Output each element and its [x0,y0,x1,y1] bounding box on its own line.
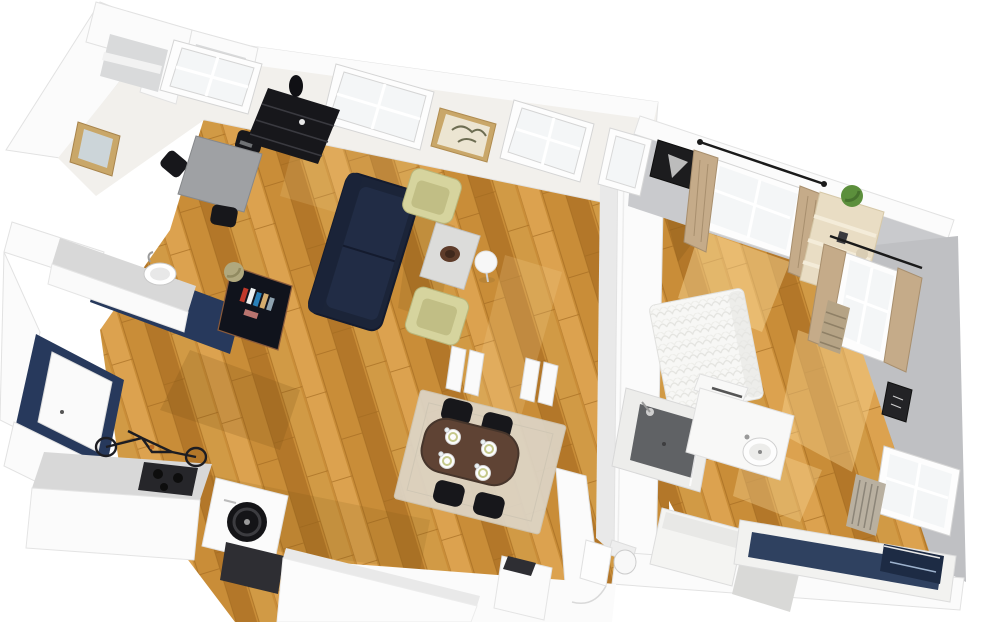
door-handle [60,410,64,414]
sink-drain [758,450,762,454]
olive-vase [224,262,244,282]
burner [173,473,183,483]
sink-faucet [745,435,750,440]
burner [160,483,168,491]
rod-finial [697,139,703,145]
toilet-bowl [614,550,636,574]
bedroom-art-2[interactable] [882,382,912,422]
washer-hub [244,519,250,525]
rod-finial [821,181,827,187]
burner [153,469,163,479]
island-front [26,488,200,560]
door-leaf [580,540,612,586]
etagere-mug [299,119,305,125]
side-cabinet[interactable] [494,556,552,620]
plant [841,185,863,207]
lamp-globe [475,251,497,273]
floorplan-svg: 3D apartment floor plan [0,0,990,622]
bike-accent [150,445,155,450]
bowl-inner [445,250,455,258]
art-frame [882,382,912,422]
shower-drain [662,442,666,446]
floorplan-render: 3D apartment floor plan [0,0,990,622]
cooktop [138,462,198,496]
etagere-vase [289,75,303,97]
kitchen-island[interactable] [26,452,212,560]
sink-basin [150,268,170,281]
